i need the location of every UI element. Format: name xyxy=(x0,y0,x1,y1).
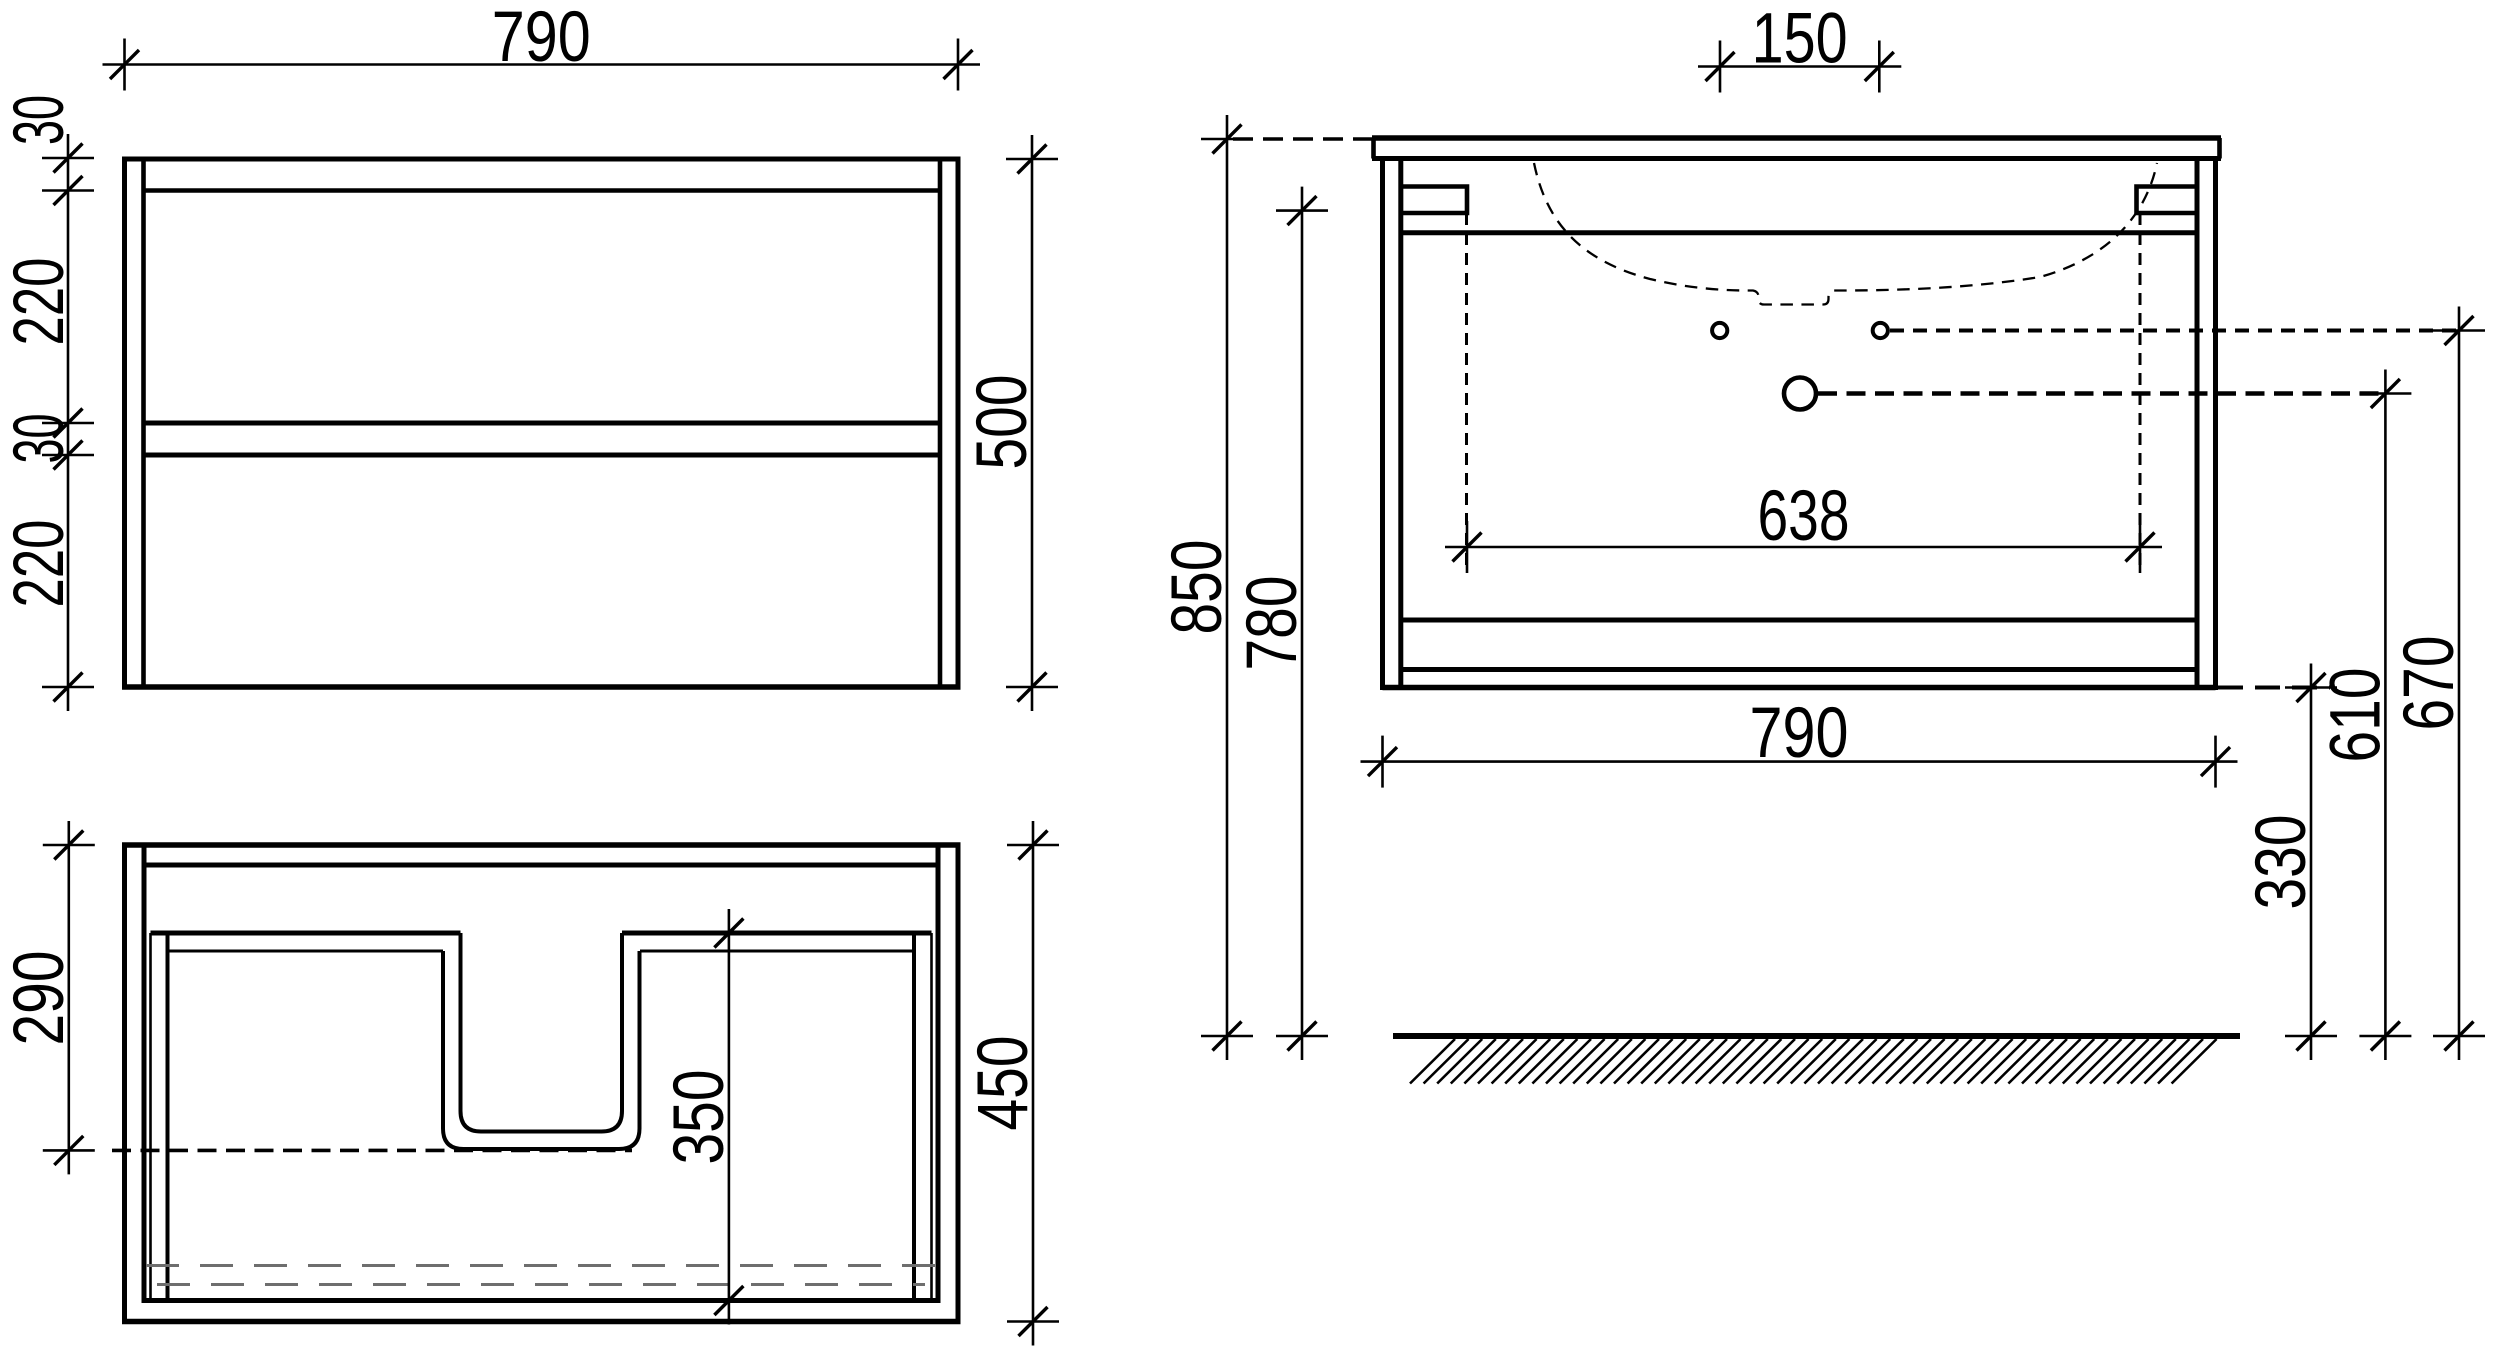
svg-text:450: 450 xyxy=(964,1036,1043,1131)
svg-text:220: 220 xyxy=(0,520,79,608)
svg-text:610: 610 xyxy=(2316,668,2395,763)
svg-text:350: 350 xyxy=(660,1070,739,1165)
svg-text:790: 790 xyxy=(1750,694,1849,773)
svg-text:850: 850 xyxy=(1158,540,1237,635)
svg-text:670: 670 xyxy=(2390,636,2469,731)
svg-text:290: 290 xyxy=(0,951,79,1046)
svg-text:638: 638 xyxy=(1758,477,1850,556)
svg-text:790: 790 xyxy=(492,0,591,77)
svg-text:330: 330 xyxy=(2242,815,2321,910)
svg-text:500: 500 xyxy=(963,375,1042,470)
svg-text:220: 220 xyxy=(0,258,79,346)
svg-text:30: 30 xyxy=(0,414,79,464)
svg-text:150: 150 xyxy=(1752,0,1848,79)
svg-text:780: 780 xyxy=(1233,576,1312,671)
svg-text:30: 30 xyxy=(0,95,79,145)
